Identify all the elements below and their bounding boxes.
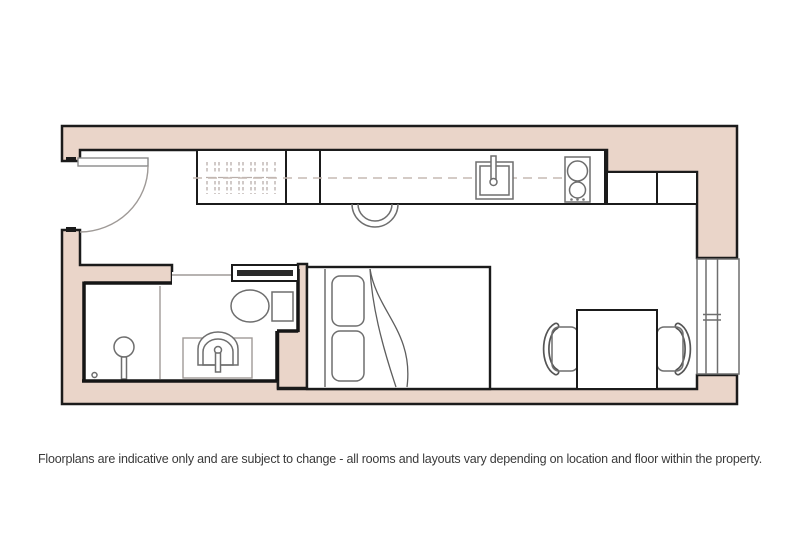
wall-cabinet-2 xyxy=(657,172,697,204)
chair-seat-right xyxy=(657,327,683,371)
kitchen-sink-icon xyxy=(476,156,513,199)
dining-table xyxy=(577,310,657,389)
door-jamb-bottom xyxy=(66,227,76,232)
hob-icon xyxy=(565,157,590,202)
bathroom-floor xyxy=(84,272,298,381)
floorplan-page: Floorplans are indicative only and are s… xyxy=(0,0,800,533)
wall-cabinet-1 xyxy=(607,172,657,204)
dining-set xyxy=(546,310,688,389)
window xyxy=(697,259,739,374)
chair-seat-left xyxy=(552,327,578,371)
bed xyxy=(307,267,490,389)
toilet-icon xyxy=(231,290,293,322)
kitchen-counter xyxy=(320,150,605,204)
disclaimer-text: Floorplans are indicative only and are s… xyxy=(0,452,800,466)
door-leaf xyxy=(78,158,148,166)
door-jamb-top xyxy=(66,157,76,162)
kitchen-cabinet xyxy=(286,150,320,204)
bathroom-pod xyxy=(82,265,298,381)
door-swing-arc xyxy=(80,166,148,232)
counter-round-leaf-icon xyxy=(352,204,398,227)
entry-door xyxy=(66,157,148,232)
